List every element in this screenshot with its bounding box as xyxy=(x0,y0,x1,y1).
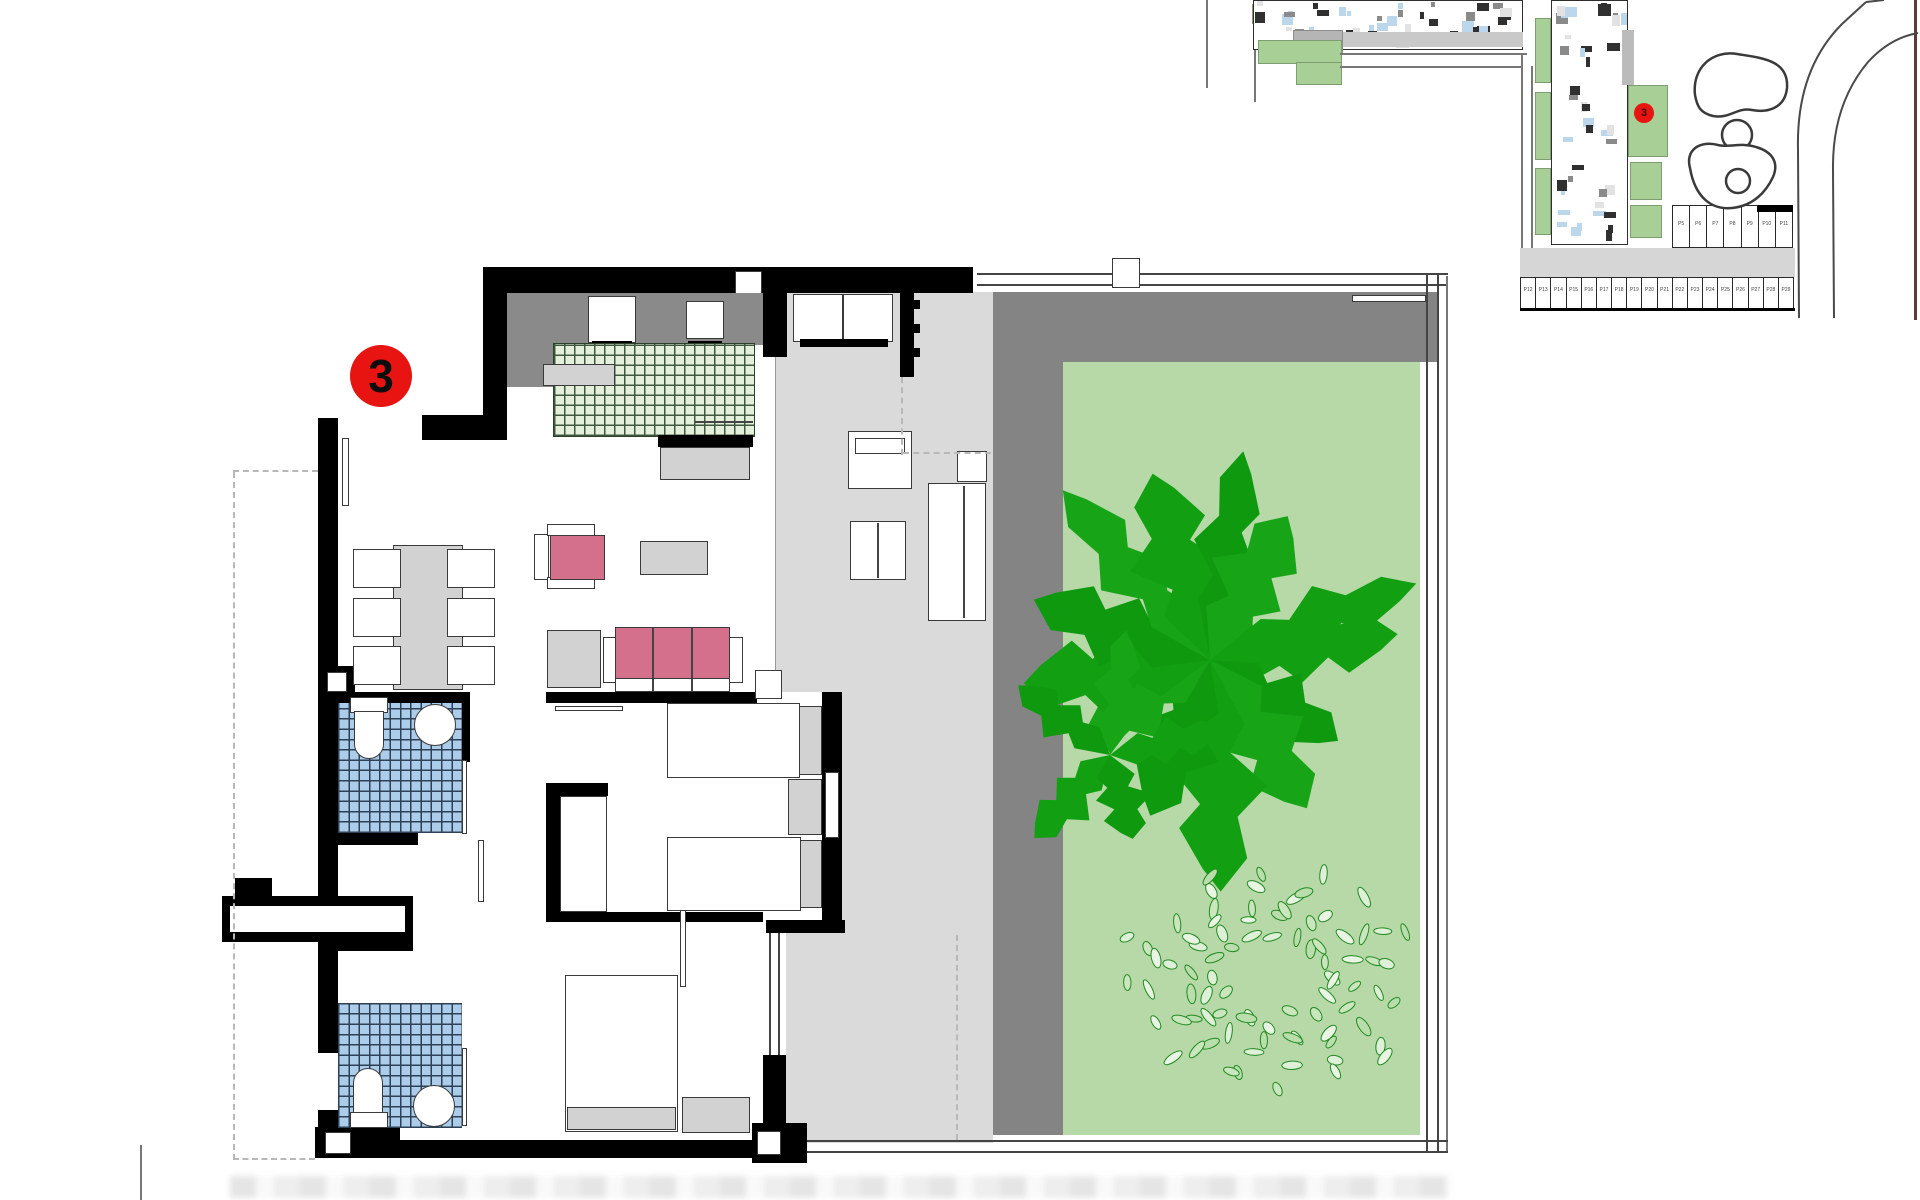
site-building-detail xyxy=(1607,43,1619,51)
parking-stall: P6 xyxy=(1689,206,1706,247)
site-green-area xyxy=(1535,168,1551,235)
entrance-door xyxy=(230,906,405,932)
wall-kitchen-right xyxy=(763,292,787,357)
site-building-detail xyxy=(1500,8,1513,17)
dining-chair xyxy=(353,598,401,637)
parking-stall: P19 xyxy=(1626,278,1641,308)
sofa-cushion-line xyxy=(691,628,693,678)
site-building-detail xyxy=(1339,7,1346,16)
site-building-detail xyxy=(1595,202,1604,208)
hall-table xyxy=(957,451,987,482)
site-building-detail xyxy=(1563,137,1573,143)
parking-stall: P8 xyxy=(1723,206,1740,247)
hall-side-table-line xyxy=(877,523,879,578)
parking-wall xyxy=(1757,205,1793,212)
parking-stall: P28 xyxy=(1763,278,1778,308)
window-glass-line xyxy=(778,933,780,1055)
boundary-dashed xyxy=(233,470,318,472)
unit-number-label: 3 xyxy=(368,349,394,403)
closet xyxy=(793,294,843,342)
bed xyxy=(667,703,800,778)
nightstand xyxy=(788,779,822,835)
coffee-table xyxy=(640,541,708,575)
site-building-detail xyxy=(1568,176,1573,182)
site-building-detail xyxy=(1377,23,1388,31)
site-green-area xyxy=(1535,18,1551,83)
boundary-dashed xyxy=(233,472,235,1160)
parking-stall: P12 xyxy=(1521,278,1535,308)
terrace-floor-mid xyxy=(842,692,993,933)
door-leaf xyxy=(478,840,484,902)
parking-stall: P22 xyxy=(1672,278,1687,308)
site-green-area xyxy=(1630,162,1662,200)
parking-stall: P27 xyxy=(1748,278,1763,308)
site-building-detail xyxy=(1599,189,1607,197)
door-leaf xyxy=(342,438,349,506)
railing-bottom xyxy=(807,1151,1448,1153)
toilet-tank xyxy=(350,1112,388,1128)
site-boundary-line xyxy=(1206,0,1208,88)
parking-stall: P25 xyxy=(1717,278,1732,308)
parking-stall: P20 xyxy=(1641,278,1656,308)
hall-sofa xyxy=(928,483,986,621)
wall-bedroom2-topright xyxy=(766,920,845,933)
site-building-detail xyxy=(1347,11,1352,16)
wall-kitchen-top xyxy=(483,267,973,293)
dining-chair xyxy=(447,646,495,685)
site-building-detail xyxy=(1477,3,1489,11)
page-edge-line xyxy=(1914,0,1917,320)
parking-stall: P16 xyxy=(1581,278,1596,308)
site-building-detail xyxy=(1586,57,1590,67)
site-building-detail xyxy=(1398,3,1402,10)
closet xyxy=(843,294,893,342)
wall-bedroom-bottom xyxy=(546,912,763,922)
window-glass-line xyxy=(769,933,771,1055)
wall-closet-top xyxy=(546,783,608,796)
parking-stall: P11 xyxy=(1775,206,1792,247)
site-building-detail xyxy=(1498,17,1507,25)
site-gray-path xyxy=(1343,32,1523,47)
window-column xyxy=(763,933,786,1055)
sink xyxy=(686,301,724,339)
wall-closet-left xyxy=(546,783,560,922)
site-building-detail xyxy=(1570,86,1580,95)
site-green-area xyxy=(1535,92,1551,160)
site-gray-court xyxy=(1622,30,1634,85)
wall-bottom xyxy=(398,1140,754,1158)
site-building-detail xyxy=(1572,165,1584,170)
site-building-detail xyxy=(1571,227,1582,236)
wall-entry-jamb xyxy=(422,415,507,440)
wall-niche xyxy=(325,1132,351,1154)
parking-stall: P18 xyxy=(1611,278,1626,308)
deck-strip-left xyxy=(993,362,1063,1135)
wall-bath1-bottom xyxy=(335,832,418,845)
wardrobe xyxy=(560,796,607,912)
wall-entry-divider xyxy=(900,292,914,377)
wall-left-outer xyxy=(318,418,338,1157)
side-table xyxy=(547,630,601,688)
site-building-detail xyxy=(1317,10,1329,16)
wall-niche xyxy=(757,1131,781,1155)
site-green-area xyxy=(1296,62,1342,85)
armchair xyxy=(550,535,605,580)
sofa xyxy=(615,627,730,679)
site-building-detail xyxy=(1466,12,1475,21)
sideboard xyxy=(660,447,750,480)
site-building-detail xyxy=(1580,48,1585,58)
toilet-bowl xyxy=(354,711,384,759)
hinge-tick xyxy=(914,300,920,309)
site-building-detail xyxy=(1582,104,1590,111)
railing-right xyxy=(1437,273,1439,1152)
parking-stall: P10 xyxy=(1758,206,1775,247)
parking-stall: P14 xyxy=(1550,278,1565,308)
dining-chair xyxy=(353,646,401,685)
window xyxy=(825,772,839,838)
railing-right-outer xyxy=(1446,276,1448,1152)
site-building-detail xyxy=(1561,191,1565,196)
wall-kitchen-left xyxy=(483,267,507,420)
railing-top xyxy=(977,284,1448,286)
entrance-jamb xyxy=(235,878,272,898)
sofa-armrest xyxy=(729,637,743,683)
site-path-line xyxy=(1340,66,1522,68)
site-building-detail xyxy=(1608,225,1613,233)
site-building-detail xyxy=(1431,2,1435,6)
site-green-area xyxy=(1258,40,1342,64)
site-building-detail xyxy=(1377,16,1382,21)
door-leaf xyxy=(462,760,467,834)
dining-chair xyxy=(353,549,401,588)
pillow xyxy=(799,706,822,775)
site-building-detail xyxy=(1586,125,1593,133)
deck-drain xyxy=(1352,295,1426,302)
terrace-dashed xyxy=(956,935,958,1140)
site-building-detail xyxy=(1257,1,1263,6)
site-building-detail xyxy=(1607,125,1614,135)
dining-chair xyxy=(447,549,495,588)
site-unit-marker: 3 xyxy=(1634,103,1654,123)
sofa-seat-cushions xyxy=(615,678,730,692)
wall-pillar-bottom xyxy=(763,1055,786,1127)
site-building-detail xyxy=(1557,180,1567,191)
parking-stall: P7 xyxy=(1706,206,1723,247)
site-building-detail xyxy=(1387,16,1398,26)
parking-aisle xyxy=(1520,248,1795,277)
parking-stall: P21 xyxy=(1657,278,1672,308)
parking-edge xyxy=(1520,308,1795,311)
parking-stall: P17 xyxy=(1596,278,1611,308)
railing-bottom xyxy=(807,1140,1448,1142)
parking-stall: P26 xyxy=(1732,278,1747,308)
sofa-cushion-line xyxy=(691,679,693,691)
closet-base xyxy=(800,339,888,347)
site-building-detail xyxy=(1429,19,1437,27)
door-leaf xyxy=(462,1048,467,1126)
pillow xyxy=(800,840,822,908)
site-building-detail xyxy=(1313,3,1319,9)
console-table xyxy=(543,364,615,386)
site-building-detail xyxy=(1286,27,1292,32)
fold-line xyxy=(140,1145,142,1200)
deck-band-top xyxy=(993,292,1438,362)
site-pool xyxy=(1689,53,1787,208)
site-path-line xyxy=(1521,53,1523,248)
sofa-cushion-line xyxy=(652,628,654,678)
wall-sideboard-back xyxy=(658,435,753,447)
site-building-detail xyxy=(1621,13,1626,25)
hinge-tick xyxy=(914,324,920,333)
parking-stall: P9 xyxy=(1741,206,1758,247)
door-opening xyxy=(318,1053,338,1110)
site-building-detail xyxy=(1612,15,1621,26)
floor-plan-page: 3 P5P6P7P8P9P10P11 P12P13P14P15P16P17P18… xyxy=(0,0,1920,1200)
stove xyxy=(588,296,636,343)
unit-number-badge: 3 xyxy=(350,345,412,407)
washbasin xyxy=(414,704,456,746)
wall-living-bedroom xyxy=(546,692,757,703)
parking-stall: P15 xyxy=(1566,278,1581,308)
site-building-detail xyxy=(1558,210,1570,215)
parking-stall: P5 xyxy=(1673,206,1689,247)
duct-inner xyxy=(327,672,347,692)
tile-edge-line xyxy=(695,421,753,423)
boundary-dashed xyxy=(233,1158,315,1160)
dining-chair xyxy=(447,598,495,637)
parking-stall: P13 xyxy=(1535,278,1550,308)
site-road xyxy=(1798,0,1918,318)
site-building-detail xyxy=(1255,12,1265,23)
parking-stall: P24 xyxy=(1702,278,1717,308)
hall-armchair-back xyxy=(855,438,905,454)
bed-foot xyxy=(567,1107,676,1130)
site-building-detail xyxy=(1398,10,1403,18)
railing-top xyxy=(977,273,1448,275)
site-building-b xyxy=(1551,0,1628,245)
armchair-arm xyxy=(534,534,549,580)
bench xyxy=(682,1097,750,1133)
site-building-detail xyxy=(1284,12,1296,17)
site-building-detail xyxy=(1557,6,1565,16)
hall-sofa-back-line xyxy=(963,486,965,618)
railing-right xyxy=(1426,273,1428,1152)
parking-stall: P29 xyxy=(1778,278,1793,308)
site-path-line xyxy=(1531,66,1533,248)
site-green-area xyxy=(1630,205,1662,238)
site-building-detail xyxy=(1606,139,1617,144)
terrace-floor-bottom xyxy=(786,933,993,1143)
site-building-detail xyxy=(1557,222,1568,227)
washbasin xyxy=(413,1085,455,1127)
site-building-detail xyxy=(1601,3,1607,10)
scan-artifact xyxy=(230,1176,1450,1198)
site-building-detail xyxy=(1604,212,1616,218)
wall-pillar xyxy=(755,670,782,699)
site-path-line xyxy=(1340,53,1527,55)
site-building-detail xyxy=(1565,35,1572,40)
railing-post xyxy=(1112,258,1140,288)
lawn xyxy=(1063,362,1420,1135)
hinge-tick xyxy=(914,348,920,357)
parking-stall: P23 xyxy=(1687,278,1702,308)
parking-row-bottom: P12P13P14P15P16P17P18P19P20P21P22P23P24P… xyxy=(1520,277,1794,309)
site-building-detail xyxy=(1569,95,1578,100)
site-building-detail xyxy=(1560,46,1569,55)
shelf xyxy=(555,706,623,711)
ceiling-dashed xyxy=(901,377,903,455)
sofa-cushion-line xyxy=(652,679,654,691)
ceiling-dashed xyxy=(903,452,991,454)
site-unit-marker-label: 3 xyxy=(1641,107,1647,119)
site-building-detail xyxy=(1420,12,1425,19)
toilet-bowl xyxy=(353,1068,383,1114)
bed xyxy=(667,837,801,911)
